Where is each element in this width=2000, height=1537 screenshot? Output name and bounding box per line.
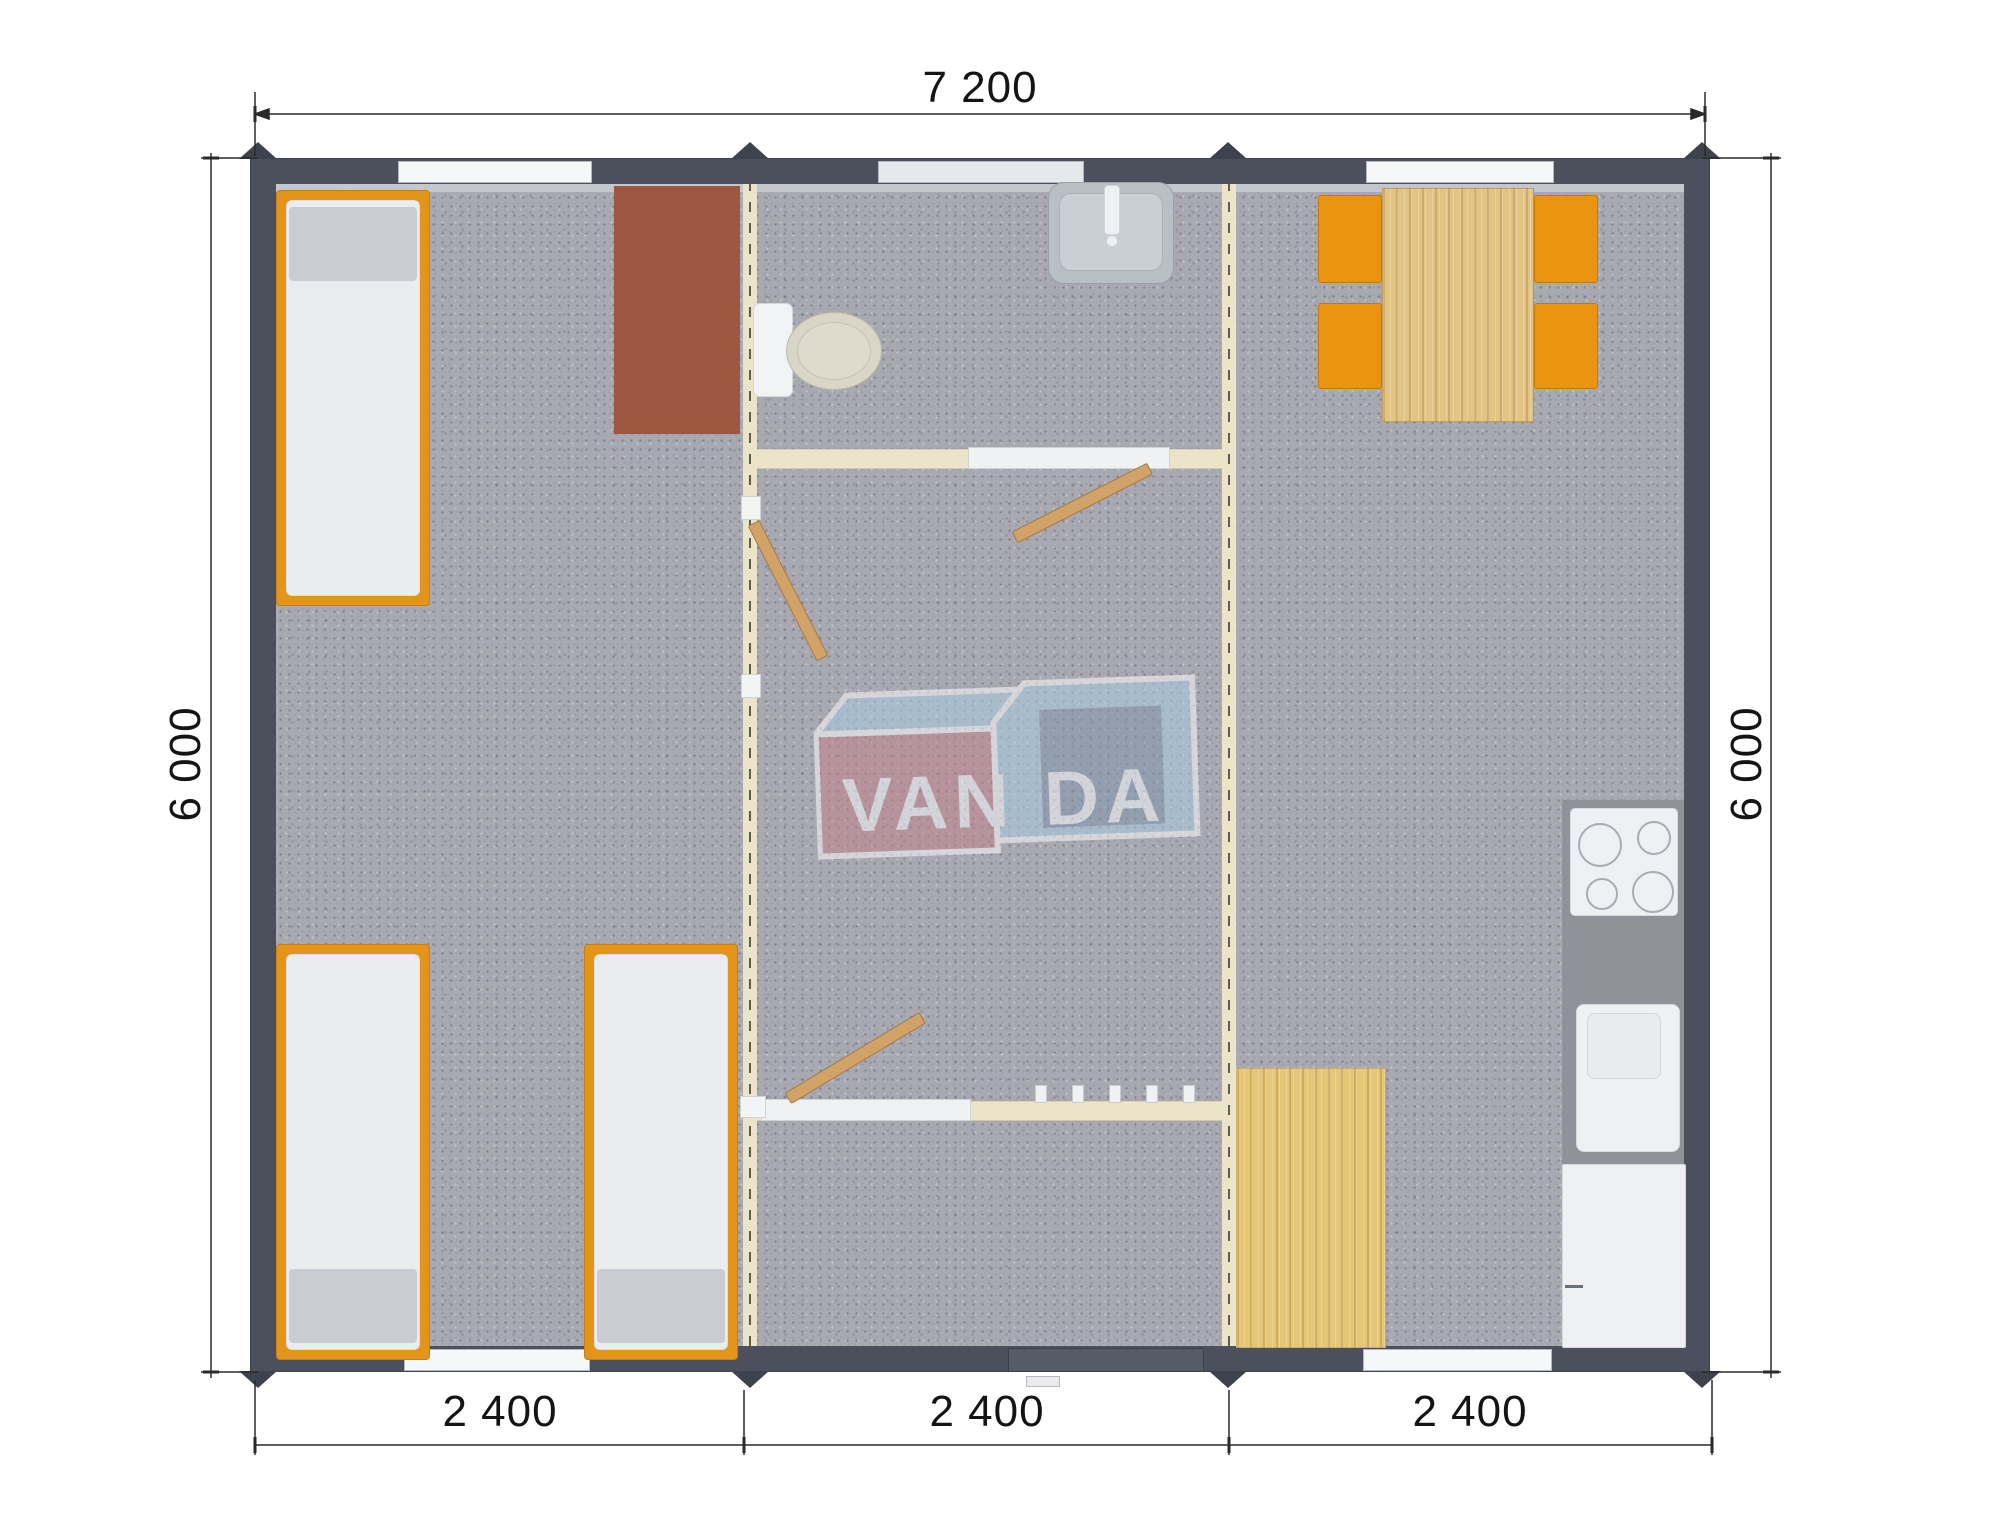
sink-icon	[1048, 182, 1174, 284]
module-partition-2	[1222, 184, 1236, 1346]
chair-icon	[1318, 303, 1382, 389]
coat-hook-icon	[1146, 1085, 1158, 1103]
burner-icon	[1578, 823, 1622, 867]
window-top-module2	[878, 161, 1084, 183]
window-bottom-module1	[404, 1349, 590, 1371]
dining-table	[1382, 188, 1534, 422]
logo-text-van: VAN	[841, 758, 1017, 849]
dimension-module3-label: 2 400	[1412, 1387, 1527, 1437]
coat-hook-icon	[1035, 1085, 1047, 1103]
bed-bottom-left	[276, 944, 430, 1360]
burner-icon	[1632, 871, 1674, 913]
bed-top-left	[276, 190, 430, 606]
corner-lug-icon	[239, 1371, 277, 1388]
entrance-step	[1026, 1376, 1060, 1387]
toilet-bowl-icon	[786, 312, 882, 390]
bedroom-door-jamb-top	[741, 496, 761, 520]
stove-icon	[1570, 808, 1678, 916]
kitchen-sink-basin	[1587, 1013, 1661, 1079]
corner-lug-icon	[1209, 142, 1247, 159]
dimension-module2-label: 2 400	[929, 1387, 1044, 1437]
bedroom-door-jamb-bottom	[741, 674, 761, 698]
toilet-seat	[797, 322, 871, 380]
window-top-module3	[1366, 161, 1554, 183]
dimension-module1-label: 2 400	[442, 1387, 557, 1437]
pillow	[289, 1269, 417, 1343]
burner-icon	[1637, 821, 1671, 855]
chair-icon	[1534, 303, 1598, 389]
window-bottom-module3	[1363, 1349, 1552, 1371]
corner-lug-icon	[1683, 142, 1721, 159]
wardrobe-desk	[614, 186, 740, 434]
dimension-height-label-left: 6 000	[161, 706, 211, 821]
coat-hook-icon	[1109, 1085, 1121, 1103]
dimension-width-label: 7 200	[922, 63, 1037, 113]
chair-icon	[1534, 195, 1598, 283]
floor-plan-sheet: VAN DA	[0, 0, 2000, 1537]
logo-text-da: DA	[1043, 752, 1168, 841]
dimension-height-label-right: 6 000	[1722, 706, 1772, 821]
chair-icon	[1318, 195, 1382, 283]
burner-icon	[1586, 878, 1618, 910]
corner-lug-icon	[731, 1371, 769, 1388]
pillow	[597, 1269, 725, 1343]
corner-lug-icon	[1209, 1371, 1247, 1388]
fridge-cabinet	[1562, 1164, 1686, 1348]
coat-hook-icon	[1072, 1085, 1084, 1103]
entrance-door	[1008, 1348, 1204, 1372]
bed-bottom-middle	[584, 944, 738, 1360]
vanda-logo: VAN DA	[812, 671, 1202, 864]
pillow	[289, 207, 417, 281]
corner-lug-icon	[239, 142, 277, 159]
window-top-module1	[398, 161, 592, 183]
faucet-spout	[1106, 235, 1118, 247]
cabinet-handle	[1565, 1285, 1583, 1288]
kitchen-sink-icon	[1576, 1004, 1680, 1152]
corner-lug-icon	[731, 142, 769, 159]
wall-junction-cap	[740, 1096, 766, 1118]
faucet-icon	[1104, 185, 1120, 235]
partition-joint-line	[749, 184, 751, 1346]
corner-lug-icon	[1683, 1371, 1721, 1388]
partition-joint-line	[1228, 184, 1230, 1346]
wood-floor-mat	[1236, 1068, 1386, 1348]
coat-hook-icon	[1183, 1085, 1195, 1103]
